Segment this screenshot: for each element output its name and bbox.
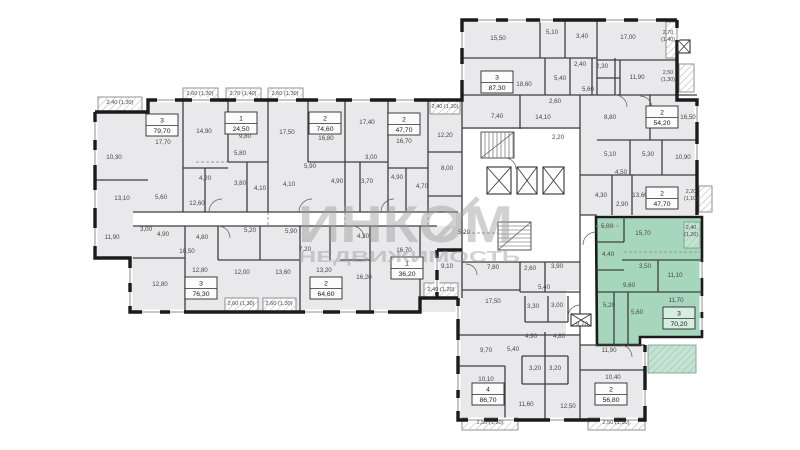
room-area-label: 4,70 [416, 183, 429, 190]
room-area-label: 9,70 [480, 347, 493, 354]
room-area-label: 12,60 [189, 200, 205, 207]
apartment-label: 274,60 [309, 112, 341, 134]
room-area-label: 5,10 [546, 29, 559, 36]
elevator-shaft [678, 40, 690, 53]
balcony-hatch [648, 345, 696, 373]
room-area-label: 10,90 [675, 154, 691, 161]
room-area-label: 11,90 [629, 74, 645, 81]
room-area-label: 4,80 [196, 234, 209, 241]
room-area-label: 2,50(1,30) [661, 70, 675, 83]
room-area-label: 4,10 [254, 185, 267, 192]
room-area-label: 5,40 [538, 284, 551, 291]
room-area-label: 3,50 [639, 263, 652, 270]
room-area-label: 12,50 [560, 403, 576, 410]
room-area-label: 2,60 [549, 98, 562, 105]
room-area-label: 5,90 [285, 228, 298, 235]
apartment-label: 387,30 [481, 71, 513, 93]
room-area-label: 5,80 [234, 150, 247, 157]
room-area-label: 16,20 [356, 274, 372, 281]
room-area-label: 15,50 [490, 35, 506, 42]
apartment-label: 264,60 [310, 277, 342, 299]
room-area-label: 8,00 [441, 165, 454, 172]
room-fill [582, 345, 645, 420]
room-area-label: 4,90 [157, 231, 170, 238]
apartment-area: 47,70 [653, 201, 670, 208]
balcony-hatch [679, 64, 694, 92]
room-area-label: 5,90 [304, 163, 317, 170]
room-area-label-line: (1,20) [684, 232, 698, 238]
apartment-label: 124,50 [225, 112, 257, 134]
room-area-label: 5,20 [603, 302, 616, 309]
apartment-label: 256,80 [595, 383, 627, 405]
room-area-label-line: 2,50 [663, 70, 674, 76]
room-area-label: 3,00 [140, 226, 153, 233]
room-area-label: 3,00 [365, 154, 378, 161]
room-area-label: 4,90 [525, 333, 538, 340]
apartment-label: 254,20 [646, 106, 678, 128]
room-area-label: 14,10 [535, 114, 551, 121]
floorplan-svg: 2,40 (1,30)2,60 (1,30)2,70 (1,40)2,60 (1… [0, 0, 800, 450]
room-area-label: 11,10 [667, 272, 683, 279]
room-area-label: 2,60 [524, 265, 537, 272]
room-area-label-line: (1,10) [684, 196, 698, 202]
apartment-rooms-count: 2 [660, 191, 664, 198]
apartment-label: 486,70 [472, 383, 504, 405]
room-area-label-line: (1,30) [661, 77, 675, 83]
apartment-area: 76,30 [192, 291, 209, 298]
apartment-rooms-count: 3 [495, 75, 499, 82]
room-area-label: 10,10 [478, 376, 494, 383]
room-area-label: 2,70(1,40) [661, 30, 675, 43]
room-area-label: 5,60 [582, 86, 595, 93]
apartment-area: 87,30 [488, 85, 505, 92]
room-area-label: 3,20 [549, 365, 562, 372]
apartment-rooms-count: 3 [199, 281, 203, 288]
room-area-label: 17,40 [359, 119, 375, 126]
room-area-label: 12,80 [152, 281, 168, 288]
room-area-label: 16,50 [680, 114, 696, 121]
room-area-label: 2,60 (1,30) [186, 91, 213, 97]
room-area-label: 9,60 [623, 282, 636, 289]
room-area-label: 2,50 (1,30) [602, 420, 629, 426]
room-area-label: 4,40 [602, 251, 615, 258]
apartment-rooms-count: 1 [239, 116, 243, 123]
room-area-label: 2,60 (1,30) [227, 301, 254, 307]
room-area-label: 2,40 (1,30) [106, 100, 133, 106]
apartment-area: 86,70 [479, 397, 496, 404]
staircase [481, 132, 514, 158]
apartment-rooms-count: 2 [324, 281, 328, 288]
room-area-label: 9,70 [576, 321, 589, 328]
apartment-rooms-count: 2 [402, 117, 406, 124]
apartment-label-highlighted[interactable]: 370,20 [663, 307, 695, 329]
room-area-label: 11,90 [601, 347, 617, 354]
room-area-label: 2,20(1,10) [684, 189, 698, 202]
apartment-area: 79,70 [153, 128, 170, 135]
apartment-area: 47,70 [395, 127, 412, 134]
room-area-label: 11,90 [104, 234, 120, 241]
room-area-label: 2,90 [616, 201, 629, 208]
room-area-label: 5,60 [631, 309, 644, 316]
room-area-label: 10,30 [106, 154, 122, 161]
room-area-label: 2,40 (1,20) [431, 104, 458, 110]
room-area-label: 15,70 [635, 230, 651, 237]
room-area-label: 2,20 [552, 134, 565, 141]
room-area-label-line: 2,70 [663, 30, 674, 36]
room-area-label: 4,10 [283, 181, 296, 188]
room-area-label: 12,80 [192, 267, 208, 274]
room-area-label: 12,20 [437, 132, 453, 139]
watermark: ИНКОМНЕДВИЖИМОСТЬ [298, 196, 520, 266]
room-area-label: 11,70 [668, 297, 684, 304]
room-area-label-line: 2,20 [686, 189, 697, 195]
room-area-label: 5,30 [642, 151, 655, 158]
apartment-area: 36,20 [398, 271, 415, 278]
apartment-rooms-count: 2 [660, 110, 664, 117]
room-area-label: 13,10 [114, 195, 130, 202]
room-area-label: 17,50 [279, 129, 295, 136]
room-area-label: 3,40 [576, 33, 589, 40]
room-area-label: 17,00 [620, 34, 636, 41]
room-area-label: 3,30 [527, 303, 540, 310]
room-area-label: 3,90 [551, 263, 564, 270]
room-area-label: 5,10 [604, 151, 617, 158]
room-area-label: 3,70 [361, 178, 374, 185]
room-area-label: 4,30 [595, 192, 608, 199]
apartment-rooms-count: 3 [160, 118, 164, 125]
room-area-label: 16,70 [396, 138, 412, 145]
elevator-shaft [487, 167, 511, 194]
room-area-label: 7,40 [491, 113, 504, 120]
room-area-label: 4,80 [553, 333, 566, 340]
room-area-label: 3,20 [529, 365, 542, 372]
room-area-label: 10,40 [605, 374, 621, 381]
elevator-shaft [517, 167, 537, 194]
apartment-area: 24,50 [232, 126, 249, 133]
balcony-hatch [699, 186, 712, 212]
room-area-label: 3,80 [234, 180, 247, 187]
room-area-label: 17,50 [485, 298, 501, 305]
room-area-label: 2,60 (1,30) [271, 91, 298, 97]
room-area-label: 2,70 (1,40) [229, 91, 256, 97]
room-area-label: 11,60 [518, 401, 534, 408]
apartment-area: 70,20 [670, 321, 687, 328]
room-area-label: 18,60 [516, 81, 532, 88]
room-area-label: 2,50 (1,30) [476, 420, 503, 426]
apartment-rooms-count: 2 [323, 116, 327, 123]
apartment-area: 64,60 [317, 291, 334, 298]
room-area-label: 16,80 [318, 135, 334, 142]
room-area-label: 13,20 [316, 267, 332, 274]
room-area-label: 8,80 [604, 114, 617, 121]
room-fill [130, 250, 148, 312]
floorplan-image: 2,40 (1,30)2,60 (1,30)2,70 (1,40)2,60 (1… [0, 0, 800, 450]
apartment-area: 74,60 [316, 126, 333, 133]
room-area-label: 3,00 [551, 302, 564, 309]
room-area-label: 5,40 [554, 75, 567, 82]
room-area-label: 10,50 [179, 248, 195, 255]
apartment-label: 247,70 [388, 113, 420, 135]
room-area-label: 4,90 [331, 178, 344, 185]
room-fill [95, 112, 148, 258]
room-area-label: 2,60 (1,30) [265, 301, 292, 307]
room-area-label: 17,70 [155, 139, 171, 146]
room-area-label: 4,20 [199, 175, 212, 182]
room-area-label: 13,60 [275, 269, 291, 276]
room-area-label-line: 2,40 [686, 225, 697, 231]
room-area-label: 2,40(1,20) [684, 225, 698, 238]
room-area-label: 2,30 [596, 63, 609, 70]
apartment-label: 376,30 [185, 277, 217, 299]
room-area-label: 4,90 [391, 174, 404, 181]
watermark-text: ИНКОМ [298, 196, 513, 254]
room-area-label: 4,50 [615, 169, 628, 176]
room-area-label: 2,40 [574, 61, 587, 68]
room-area-label: 5,00 [601, 223, 614, 230]
room-area-label: 14,90 [196, 128, 212, 135]
room-area-label: 5,40 [507, 346, 520, 353]
apartment-area: 56,80 [602, 397, 619, 404]
apartment-rooms-count: 3 [677, 311, 681, 318]
apartment-rooms-count: 2 [609, 387, 613, 394]
room-area-label: 5,20 [244, 227, 257, 234]
room-area-label: 12,00 [234, 269, 250, 276]
room-area-label: 5,60 [155, 194, 168, 201]
apartment-label: 379,70 [146, 114, 178, 136]
watermark-text: НЕДВИЖИМОСТЬ [298, 249, 520, 266]
elevator-shaft [543, 167, 564, 194]
apartment-rooms-count: 4 [486, 387, 490, 394]
apartment-area: 54,20 [653, 120, 670, 127]
room-area-label-line: (1,40) [661, 37, 675, 43]
apartment-label: 247,70 [646, 187, 678, 209]
room-area-label: 2,40 (1,20) [427, 287, 454, 293]
